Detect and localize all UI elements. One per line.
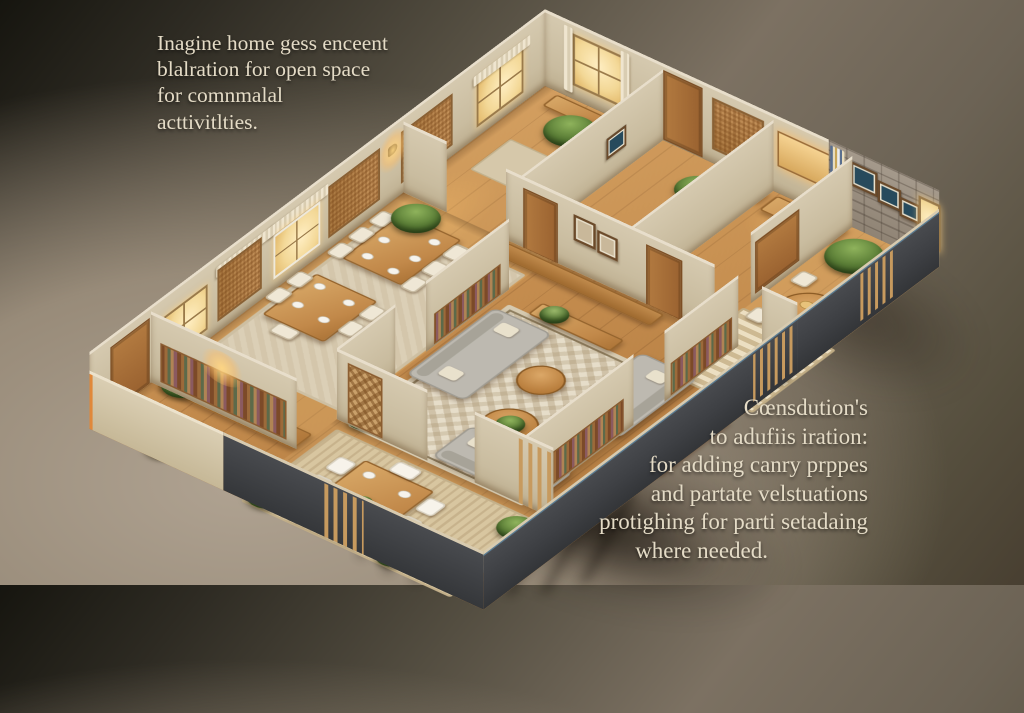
caption-line: Cœnsdution's: [599, 394, 868, 423]
white-dining-chair: [414, 497, 447, 517]
plate: [315, 315, 332, 325]
plate: [311, 282, 328, 292]
window: [573, 33, 625, 109]
coffee-table-small: [506, 360, 576, 401]
caption-top-left: Inagine home gess enceent blalration for…: [157, 30, 388, 135]
caption-line: where needed.: [599, 537, 768, 566]
caption-line: protighing for parti setadaing: [599, 508, 868, 537]
caption-bottom-right: Cœnsdution's to adufiis iration: for add…: [599, 394, 868, 565]
plate: [340, 298, 357, 308]
ai-rendered-floorplan-image: { "scene": { "description": "Isometric 3…: [0, 0, 1024, 585]
dining-chair: [399, 275, 429, 293]
white-dining-chair: [324, 456, 357, 476]
plate: [395, 489, 413, 500]
plate: [289, 300, 306, 310]
caption-line: and partate velstuations: [599, 480, 868, 509]
white-dining-chair: [387, 461, 423, 481]
sofa-pillow: [492, 322, 520, 338]
window-panes: [575, 37, 622, 106]
sofa-pillow: [437, 365, 465, 381]
plate: [376, 235, 393, 245]
living-console: [528, 303, 625, 352]
picture-frame: [607, 124, 627, 160]
plate: [360, 470, 378, 481]
caption-line: acttivitlties.: [157, 109, 388, 135]
dining-chair: [268, 322, 302, 341]
plate: [397, 221, 414, 231]
caption-line: for adding canry prppes: [599, 451, 868, 480]
plate: [385, 266, 402, 276]
plate: [426, 237, 443, 247]
nook-chair: [789, 270, 820, 288]
caption-line: for comnmalal: [157, 82, 388, 108]
caption-line: to adufiis iration:: [599, 423, 868, 452]
palm-plant: [533, 302, 575, 327]
picture-frame: [574, 214, 596, 250]
caption-line: Inagine home gess enceent: [157, 30, 388, 56]
caption-line: blalration for open space: [157, 56, 388, 82]
sheer-curtain: [564, 24, 573, 93]
plate: [359, 251, 376, 261]
picture-frame: [597, 230, 617, 262]
plate: [407, 254, 424, 264]
